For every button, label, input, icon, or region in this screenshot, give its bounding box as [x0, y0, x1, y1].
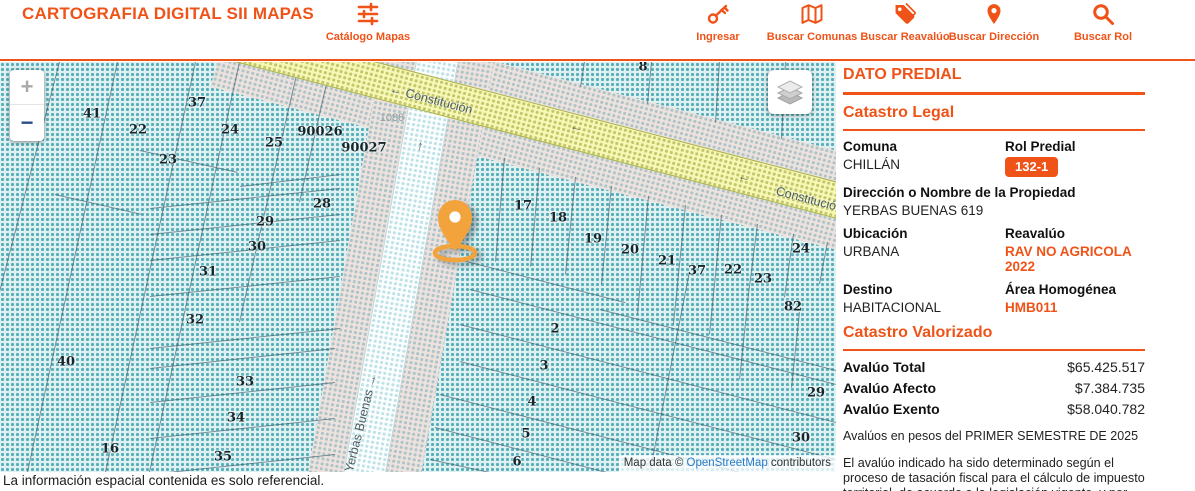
- parcel-number: 2: [550, 322, 559, 337]
- toolbar-label: Buscar Comunas: [767, 31, 857, 43]
- openstreetmap-link[interactable]: OpenStreetMap: [687, 457, 768, 469]
- parcel-number: 17: [514, 199, 532, 214]
- ubicacion-label: Ubicación: [843, 218, 1005, 241]
- catastro-valorizado-heading: Catastro Valorizado: [843, 315, 1145, 351]
- catastro-legal-heading: Catastro Legal: [843, 95, 1145, 131]
- app-title: CARTOGRAFIA DIGITAL SII MAPAS: [22, 4, 314, 24]
- map-icon: [766, 2, 858, 26]
- map-attribution: Map data © OpenStreetMap contributors: [619, 455, 836, 472]
- ubicacion-value: URBANA: [843, 241, 1005, 274]
- parcel-number: 22: [129, 123, 147, 138]
- rol-predial-label: Rol Predial: [1005, 131, 1145, 154]
- avaluo-total-row: Avalúo Total $65.425.517: [843, 359, 1145, 375]
- parcel-number: 41: [83, 107, 101, 122]
- avaluo-disclaimer: El avalúo indicado ha sido determinado s…: [843, 456, 1145, 491]
- location-marker-icon: [420, 196, 490, 266]
- toolbar-label: Catálogo Mapas: [326, 31, 410, 43]
- parcel-number: 35: [214, 450, 232, 465]
- map-canvas[interactable]: 4122372425239002690027828293031324033341…: [0, 62, 836, 472]
- zoom-control: + −: [10, 70, 44, 141]
- parcel-number: 40: [57, 355, 75, 370]
- layers-icon: [773, 75, 807, 109]
- avaluo-semester-note: Avalúos en pesos del PRIMER SEMESTRE DE …: [843, 429, 1145, 443]
- parcel-number: 32: [186, 313, 204, 328]
- toolbar-label: Ingresar: [696, 31, 739, 43]
- comuna-label: Comuna: [843, 131, 1005, 154]
- parcel-number: 4: [527, 395, 536, 410]
- parcel-number: 30: [248, 240, 266, 255]
- toolbar-item-ingresar[interactable]: Ingresar: [672, 2, 764, 45]
- parcel-number: 29: [807, 386, 825, 401]
- parcel-number: 20: [621, 243, 639, 258]
- reavaluo-value: RAV NO AGRICOLA 2022: [1005, 241, 1135, 274]
- toolbar-item-buscar-direccion[interactable]: Buscar Dirección: [948, 2, 1040, 45]
- parcel-number: 37: [688, 264, 706, 279]
- direccion-value: YERBAS BUENAS 619: [843, 200, 1145, 218]
- parcel-number: 82: [784, 300, 802, 315]
- parcel-number: 3: [539, 359, 548, 374]
- avaluo-afecto-value: $7.384.735: [1075, 380, 1145, 396]
- parcel-number: 23: [754, 272, 772, 287]
- parcel-number: 28: [313, 197, 331, 212]
- avaluo-afecto-label: Avalúo Afecto: [843, 380, 936, 396]
- parcel-number: 24: [221, 123, 239, 138]
- key-icon: [672, 2, 764, 26]
- tag-icon: [859, 2, 951, 26]
- reavaluo-label: Reavalúo: [1005, 218, 1145, 241]
- rol-predial-badge[interactable]: 132-1: [1005, 157, 1058, 177]
- parcel-number: 24: [792, 242, 810, 257]
- parcel-number: 5: [521, 427, 530, 442]
- parcel-number: 19: [584, 232, 602, 247]
- layers-button[interactable]: [768, 70, 812, 114]
- parcel-number: 31: [199, 265, 217, 280]
- toolbar-label: Buscar Dirección: [949, 31, 1039, 43]
- parcel-number: 23: [159, 153, 177, 168]
- left-arrow-icon: ←: [388, 82, 404, 99]
- parcel-number: 6: [512, 455, 521, 470]
- zoom-in-button[interactable]: +: [10, 70, 44, 105]
- parcel-number: 18: [549, 211, 567, 226]
- toolbar-label: Buscar Reavalúo: [860, 31, 949, 43]
- parcel-number: 16: [101, 442, 119, 457]
- comuna-value: CHILLÁN: [843, 154, 1005, 177]
- destino-label: Destino: [843, 274, 1005, 297]
- parcel-number: 30: [792, 431, 810, 446]
- sliders-icon: [322, 2, 414, 26]
- parcel-number: 21: [658, 254, 676, 269]
- parcel-number: 29: [256, 215, 274, 230]
- parcel-number: 8: [638, 62, 647, 75]
- app-header: CARTOGRAFIA DIGITAL SII MAPAS Catálogo M…: [0, 0, 1195, 61]
- avaluo-exento-label: Avalúo Exento: [843, 401, 940, 417]
- toolbar-item-buscar-reavaluo[interactable]: Buscar Reavalúo: [859, 2, 951, 45]
- parcel-number: 34: [227, 411, 245, 426]
- toolbar-label: Buscar Rol: [1074, 31, 1132, 43]
- parcel-number: 22: [724, 263, 742, 278]
- predial-panel: DATO PREDIAL Catastro Legal Comuna Rol P…: [843, 62, 1145, 491]
- pin-icon: [948, 2, 1040, 26]
- panel-title: DATO PREDIAL: [843, 62, 1145, 95]
- toolbar-item-catalogo-mapas[interactable]: Catálogo Mapas: [322, 2, 414, 45]
- avaluo-total-label: Avalúo Total: [843, 359, 925, 375]
- area-homogenea-label: Área Homogénea: [1005, 274, 1145, 297]
- parcel-number: 90026: [297, 125, 342, 140]
- direccion-label: Dirección o Nombre de la Propiedad: [843, 177, 1145, 200]
- zoom-out-button[interactable]: −: [10, 105, 44, 140]
- toolbar-item-buscar-comunas[interactable]: Buscar Comunas: [766, 2, 858, 45]
- avaluo-total-value: $65.425.517: [1067, 359, 1145, 375]
- parcel-number: 25: [265, 136, 283, 151]
- parcel-number: 37: [188, 96, 206, 111]
- destino-value: HABITACIONAL: [843, 297, 1005, 315]
- toolbar-item-buscar-rol[interactable]: Buscar Rol: [1057, 2, 1149, 45]
- search-icon: [1057, 2, 1149, 26]
- disclaimer-note: La información espacial contenida es sol…: [3, 473, 324, 488]
- avaluo-exento-row: Avalúo Exento $58.040.782: [843, 401, 1145, 417]
- avaluo-exento-value: $58.040.782: [1067, 401, 1145, 417]
- parcel-number: 33: [236, 375, 254, 390]
- avaluo-afecto-row: Avalúo Afecto $7.384.735: [843, 380, 1145, 396]
- area-homogenea-value: HMB011: [1005, 297, 1145, 315]
